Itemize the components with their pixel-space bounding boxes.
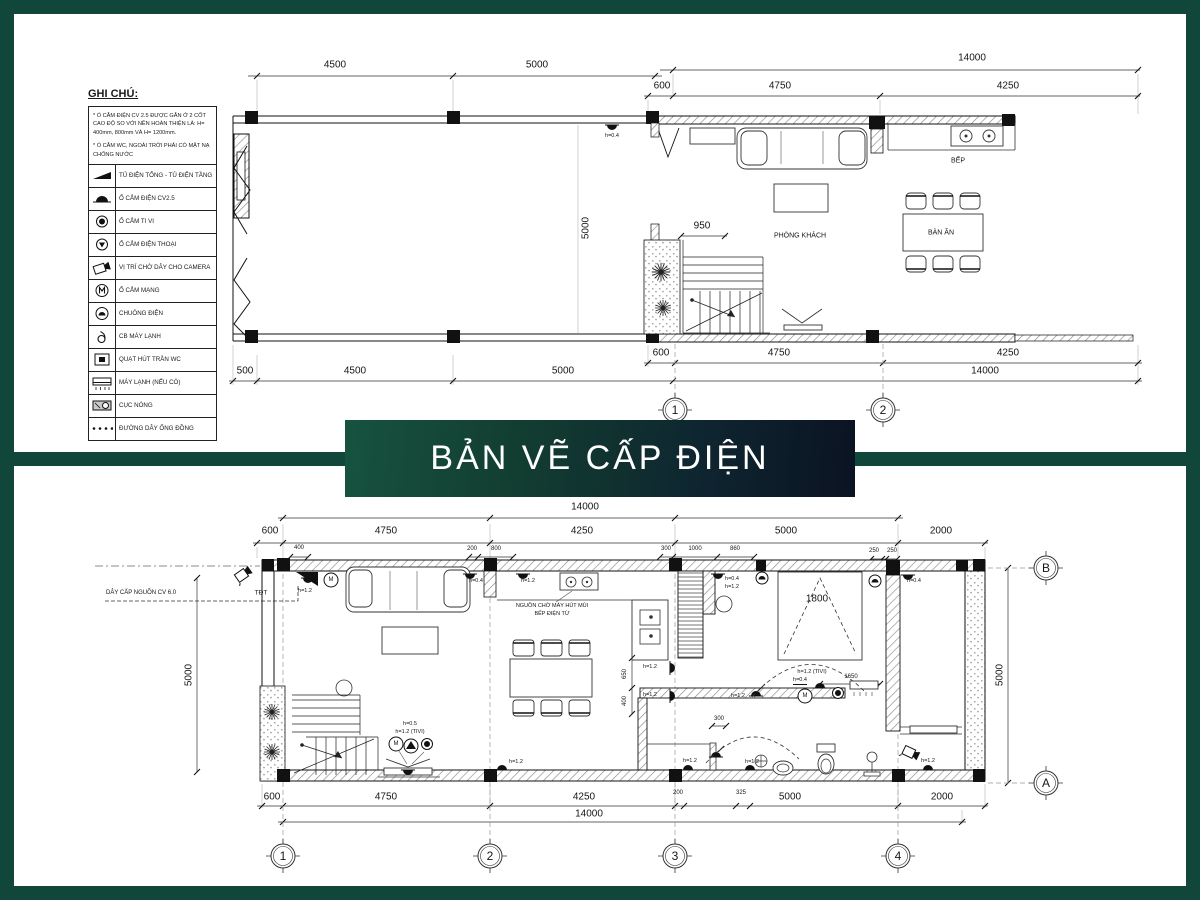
dim-label: 200 [467,546,477,552]
dim-label: 5000 [526,60,548,71]
dim-label: 4500 [324,60,346,71]
dim-label: 800 [491,546,501,552]
dim-label: 5000 [779,792,801,803]
dim-label: 4250 [571,526,593,537]
dim-label-vertical: 400 [622,696,628,706]
dim-label: 860 [730,546,740,552]
dim-label: 14000 [575,809,603,820]
socket-height-label: h=1.2 [921,758,935,764]
socket-height-label: h=1.2 [298,588,312,594]
socket-height-label: h=1.2 [745,759,759,765]
dim-label: 5000 [775,526,797,537]
dim-label: 400 [294,545,304,551]
network-socket-letter: M [329,577,334,583]
grid-bubble-2: 2 [880,403,887,417]
grid-bubble-B: B [1042,561,1050,575]
dim-label: 14000 [971,366,999,377]
dim-label: 325 [736,790,746,796]
socket-height-label: h=0.4 [725,576,739,582]
dim-label: 2000 [931,792,953,803]
dim-label-vertical: 5000 [581,217,592,239]
socket-height-label: h=1.2 [643,692,657,698]
dim-label: 600 [262,526,279,537]
socket-height-label: h=0.5 [403,721,417,727]
dim-label-vertical: 5000 [184,664,195,686]
room-label-kitchen: BẾP [951,158,965,165]
dim-label: 2000 [930,526,952,537]
grid-bubble-1: 1 [672,403,679,417]
grid-bubble-3: 3 [672,849,679,863]
dim-label: 500 [237,366,254,377]
dim-label: 600 [264,792,281,803]
electrical-plan-sheet: { "banner": { "title": "BẢN VẼ CẤP ĐIỆN"… [0,0,1200,900]
dim-label: 250 [887,548,897,554]
dim-label: 4750 [768,348,790,359]
socket-height-label: h=0.4 [605,133,619,139]
dim-label: 4750 [375,792,397,803]
dim-label-vertical: 650 [622,669,628,679]
dim-label: 4500 [344,366,366,377]
network-socket-letter: M [394,741,399,747]
dim-label: 4750 [769,81,791,92]
socket-height-label: h=1.2 [683,758,697,764]
grid-bubble-A: A [1042,776,1050,790]
dim-label: 950 [694,221,711,232]
dim-label: 4250 [997,81,1019,92]
dim-label: 14000 [571,502,599,513]
grid-bubble-2: 2 [487,849,494,863]
dim-label: 1000 [688,546,701,552]
grid-bubble-4: 4 [895,849,902,863]
dim-label: 5000 [552,366,574,377]
socket-height-label: h=0.4 [907,578,921,584]
socket-height-label: h=1.2 [521,578,535,584]
dim-label: 14000 [958,53,986,64]
title-banner: BẢN VẼ CẤP ĐIỆN [345,420,855,497]
dim-label: 300 [661,546,671,552]
socket-height-label: h=1.2 [725,584,739,590]
dim-label: 4750 [375,526,397,537]
dim-label: 600 [654,81,671,92]
supply-cable-label: DÂY CẤP NGUỒN CV 6.0 [106,590,176,596]
socket-height-label: h=1.2 [509,759,523,765]
bed-dim-label: 1800 [806,594,828,605]
grid-bubble-1: 1 [280,849,287,863]
dim-label: 250 [869,548,879,554]
dim-label: 1650 [844,674,857,680]
network-socket-letter: M [803,693,808,699]
dim-label: 200 [673,790,683,796]
socket-height-label: h=0.4 [469,578,483,584]
socket-height-label: h=0.4 [793,677,807,685]
dim-label: 300 [714,716,724,722]
hood-power-note: BẾP ĐIỆN TỪ [534,611,569,617]
socket-height-label: h=1.2 [643,664,657,670]
socket-height-label: h=1.2 [731,693,745,699]
hood-power-note: NGUỒN CHỜ MÁY HÚT MÙI [516,603,588,609]
main-panel-label: TĐT [255,590,268,597]
room-label-dining: BÀN ĂN [928,230,954,237]
drawing-title: BẢN VẼ CẤP ĐIỆN [430,439,769,478]
dim-label: 4250 [573,792,595,803]
socket-height-label: h=1.2 (TIVI) [797,669,826,675]
dim-label: 600 [653,348,670,359]
room-label-living: PHÒNG KHÁCH [774,233,826,240]
dim-label: 4250 [997,348,1019,359]
socket-height-label: h=1.2 (TIVI) [395,729,424,735]
dim-label-vertical: 5000 [995,664,1006,686]
